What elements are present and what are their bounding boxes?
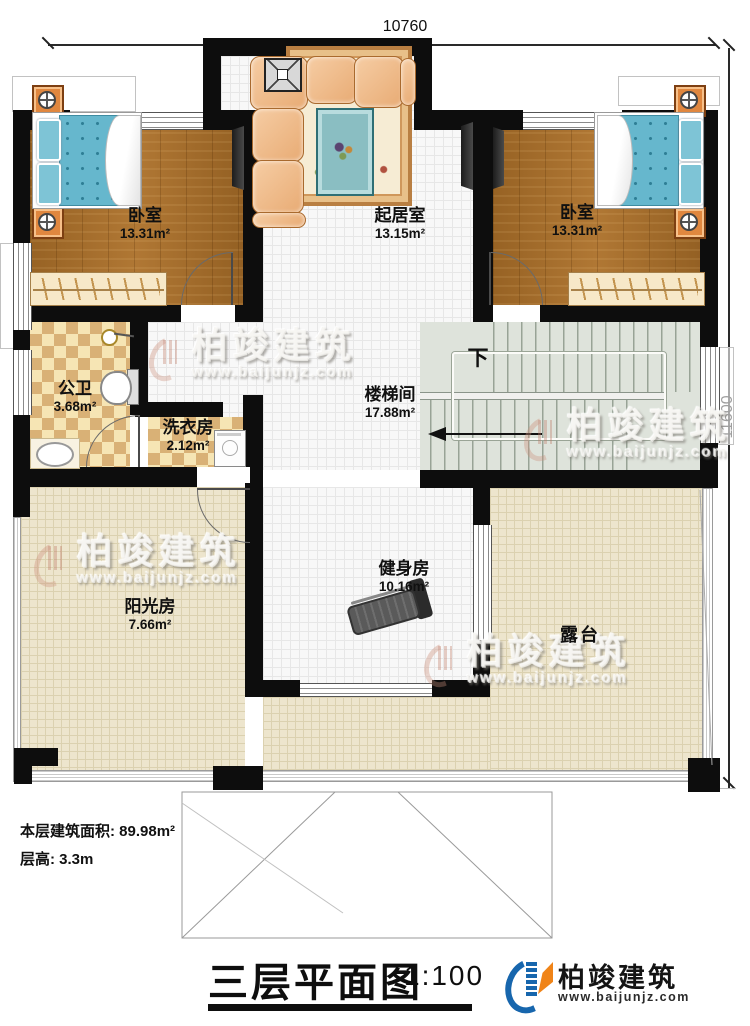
shower-fixture-icon [101,329,118,346]
room-name: 楼梯间 [338,384,442,405]
av-speaker-box [264,58,302,92]
table-decor [332,138,356,164]
wall [540,305,718,322]
room-name: 公卫 [32,378,118,399]
wall [13,330,30,350]
room-label-laundry: 洗衣房 2.12m² [138,417,238,453]
wardrobe-rod [33,289,164,291]
sofa-cushion [252,160,304,214]
wall [473,640,490,683]
stair-down-label: 下 [463,342,493,372]
room-label-bedroom-right: 卧室 13.31m² [527,202,627,238]
stair-direction-arrow-line [446,433,542,435]
window [473,525,492,640]
pillow [679,163,703,205]
brand-url: www.baijunjz.com [558,990,690,1004]
room-name: 卧室 [95,205,195,226]
drawing-title: 三层平面图 [208,950,423,1008]
bed-blanket [597,115,633,206]
floor-plan-canvas: 10760 11600 [0,0,750,1026]
wall [13,415,30,517]
room-name: 洗衣房 [138,417,238,438]
window [300,683,432,697]
bed [32,112,142,209]
pillow [37,119,61,161]
sofa-cushion [252,108,304,162]
logo-building-bar [526,960,537,996]
wall [473,305,488,322]
window [700,347,720,443]
room-area: 13.31m² [95,226,195,241]
terrace-floor-south [263,697,490,770]
room-label-bathroom: 公卫 3.68m² [32,378,118,414]
drawing-scale: 1:100 [404,960,484,992]
wall [13,467,197,487]
wall [13,110,30,243]
glass-rail-bottom [13,770,713,782]
sofa-cushion [354,56,404,108]
roof-outline [175,785,565,945]
lamp-icon [38,213,56,231]
terrace-drain-line [692,485,722,775]
stair-direction-arrow-head [428,427,446,441]
room-label-living: 起居室 13.15m² [345,205,455,241]
room-area: 13.15m² [345,226,455,241]
floor-area-text: 本层建筑面积: 89.98m² [20,820,175,841]
lamp-icon [680,91,698,109]
room-area: 7.66m² [100,617,200,632]
floor-height-text: 层高: 3.3m [20,848,93,869]
wall [414,38,432,130]
wall [13,305,181,322]
lamp-icon [680,213,698,231]
bed [594,112,704,209]
dim-tick [42,37,55,50]
title-underline [208,1004,472,1011]
dim-top-label: 10760 [355,18,455,36]
wall [135,402,223,417]
wall [203,38,221,122]
wall [473,483,490,525]
room-area: 2.12m² [138,438,238,453]
lamp-icon [38,91,56,109]
wall [235,305,263,322]
window-sill-box [12,76,136,112]
room-name: 健身房 [354,558,454,579]
nightstand [32,207,64,239]
wall [263,680,300,697]
wall [420,470,718,488]
room-area: 10.16m² [354,579,454,594]
sofa-armrest [252,212,306,228]
tv-panel [461,122,473,190]
room-name: 卧室 [527,202,627,223]
room-label-sunroom: 阳光房 7.66m² [100,596,200,632]
pillow [37,163,61,205]
room-area: 17.88m² [338,405,442,420]
wall [243,395,263,467]
brand-logo-icon [506,954,554,1008]
wall [432,680,490,697]
room-area: 13.31m² [527,223,627,238]
coffee-table [316,108,374,196]
nightstand [674,207,706,239]
pillow [679,119,703,161]
room-name: 阳光房 [100,596,200,617]
room-name: 起居室 [345,205,455,226]
room-label-stairwell: 楼梯间 17.88m² [338,384,442,420]
room-label-bedroom-left: 卧室 13.31m² [95,205,195,241]
glass-rail-left [13,517,21,770]
sofa-cushion [306,56,358,104]
tv-panel [493,127,504,189]
tv-panel [232,126,244,190]
sink-basin [36,442,74,467]
dim-tick [708,37,721,50]
room-label-terrace: 露台 [538,624,622,647]
speaker-center [277,69,288,80]
wardrobe [568,272,705,306]
window [13,350,32,415]
wardrobe [30,272,167,306]
room-label-gym: 健身房 10.16m² [354,558,454,594]
sofa-armrest [400,58,416,106]
window-sill-box [718,347,734,445]
wardrobe-rod [571,289,702,291]
bed-blanket [105,115,141,206]
corner-post [14,748,32,784]
room-area: 3.68m² [32,399,118,414]
